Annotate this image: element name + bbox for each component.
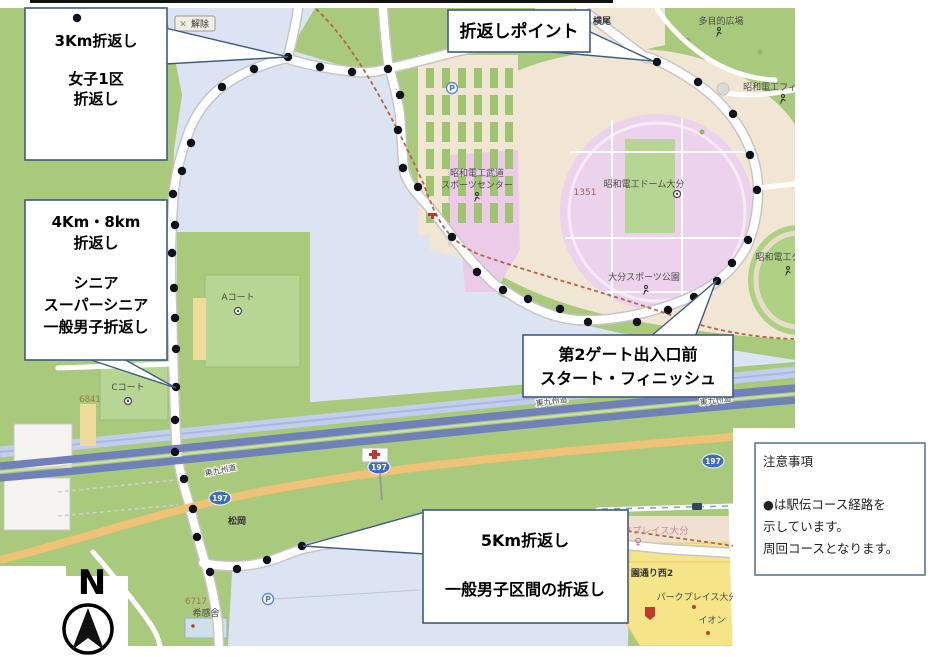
svg-text:●は駅伝コース経路を: ●は駅伝コース経路を bbox=[763, 497, 886, 512]
label-park-place: パークプレイス大分 bbox=[657, 591, 738, 603]
clear-button-label: 解除 bbox=[191, 18, 209, 30]
label-yokoo: 横尾 bbox=[593, 15, 611, 27]
close-icon: ✕ bbox=[179, 20, 187, 30]
course-map: 横尾 多目的広場 昭和電工フィ 昭和電工武道 スポーツセンター 昭和電工ドーム大… bbox=[0, 0, 942, 657]
notes-box: 注意事項 ●は駅伝コース経路を 示しています。 周回コースとなります。 bbox=[755, 443, 925, 575]
label-kikansha: 希感舎 bbox=[192, 607, 219, 619]
label-koendori-nishi2: 園通り西2 bbox=[631, 567, 673, 579]
svg-text:一般男子折返し: 一般男子折返し bbox=[43, 318, 148, 336]
svg-text:女子1区: 女子1区 bbox=[68, 70, 123, 88]
female-icon: ♀ bbox=[634, 537, 641, 548]
label-budo-line2: スポーツセンター bbox=[441, 180, 513, 191]
label-matsuoka: 松岡 bbox=[228, 515, 246, 527]
label-c-court: Cコート bbox=[111, 383, 144, 393]
label-sports-park: 大分スポーツ公園 bbox=[608, 271, 680, 283]
label-1351: 1351 bbox=[574, 188, 597, 198]
svg-text:P: P bbox=[449, 84, 455, 93]
soccer-icon-dome bbox=[674, 191, 681, 198]
north-label: N bbox=[78, 563, 106, 603]
svg-text:P: P bbox=[265, 595, 271, 604]
callout-4km-8km: 4Km・8km 折返し シニア スーパーシニア 一般男子折返し bbox=[25, 200, 176, 388]
svg-text:一般男子区間の折返し: 一般男子区間の折返し bbox=[445, 580, 605, 599]
clear-button[interactable]: ✕ 解除 bbox=[175, 16, 215, 31]
label-budo-line1: 昭和電工武道 bbox=[450, 167, 504, 179]
label-6841: 6841 bbox=[79, 395, 101, 405]
svg-text:5Km折返し: 5Km折返し bbox=[481, 531, 569, 550]
title-underline bbox=[30, 0, 613, 3]
svg-text:3Km折返し: 3Km折返し bbox=[55, 32, 138, 50]
label-tamokuteki-hiroba: 多目的広場 bbox=[698, 15, 743, 27]
label-showa-denko-ground: 昭和電工グ bbox=[755, 251, 800, 263]
soccer-icon-c-court bbox=[125, 398, 132, 405]
soccer-icon-a-court bbox=[235, 308, 242, 315]
svg-text:シニア: シニア bbox=[73, 274, 118, 292]
svg-text:スタート・フィニッシュ: スタート・フィニッシュ bbox=[540, 369, 716, 388]
svg-text:示しています。: 示しています。 bbox=[763, 519, 849, 534]
parking-icon-1: P bbox=[447, 83, 458, 94]
bus-icon bbox=[692, 503, 702, 510]
label-dome: 昭和電工ドーム大分 bbox=[604, 178, 685, 190]
svg-text:197: 197 bbox=[212, 494, 228, 503]
svg-text:197: 197 bbox=[371, 463, 387, 472]
svg-text:折返し: 折返し bbox=[73, 90, 118, 108]
svg-text:折返しポイント: 折返しポイント bbox=[460, 21, 579, 42]
label-showa-denko-field: 昭和電工フィ bbox=[743, 82, 797, 93]
label-a-court: Aコート bbox=[221, 293, 254, 303]
svg-text:第2ゲート出入口前: 第2ゲート出入口前 bbox=[558, 345, 697, 364]
svg-text:4Km・8km: 4Km・8km bbox=[52, 213, 141, 231]
svg-text:スーパーシニア: スーパーシニア bbox=[44, 296, 149, 314]
label-aeon: イオン bbox=[698, 615, 725, 626]
svg-text:注意事項: 注意事項 bbox=[763, 454, 814, 469]
label-6717: 6717 bbox=[185, 597, 207, 607]
svg-text:197: 197 bbox=[705, 457, 721, 466]
svg-text:周回コースとなります。: 周回コースとなります。 bbox=[763, 541, 898, 556]
svg-text:折返し: 折返し bbox=[73, 234, 118, 252]
roundabout bbox=[717, 83, 729, 95]
course-map-page: 横尾 多目的広場 昭和電工フィ 昭和電工武道 スポーツセンター 昭和電工ドーム大… bbox=[0, 0, 942, 657]
